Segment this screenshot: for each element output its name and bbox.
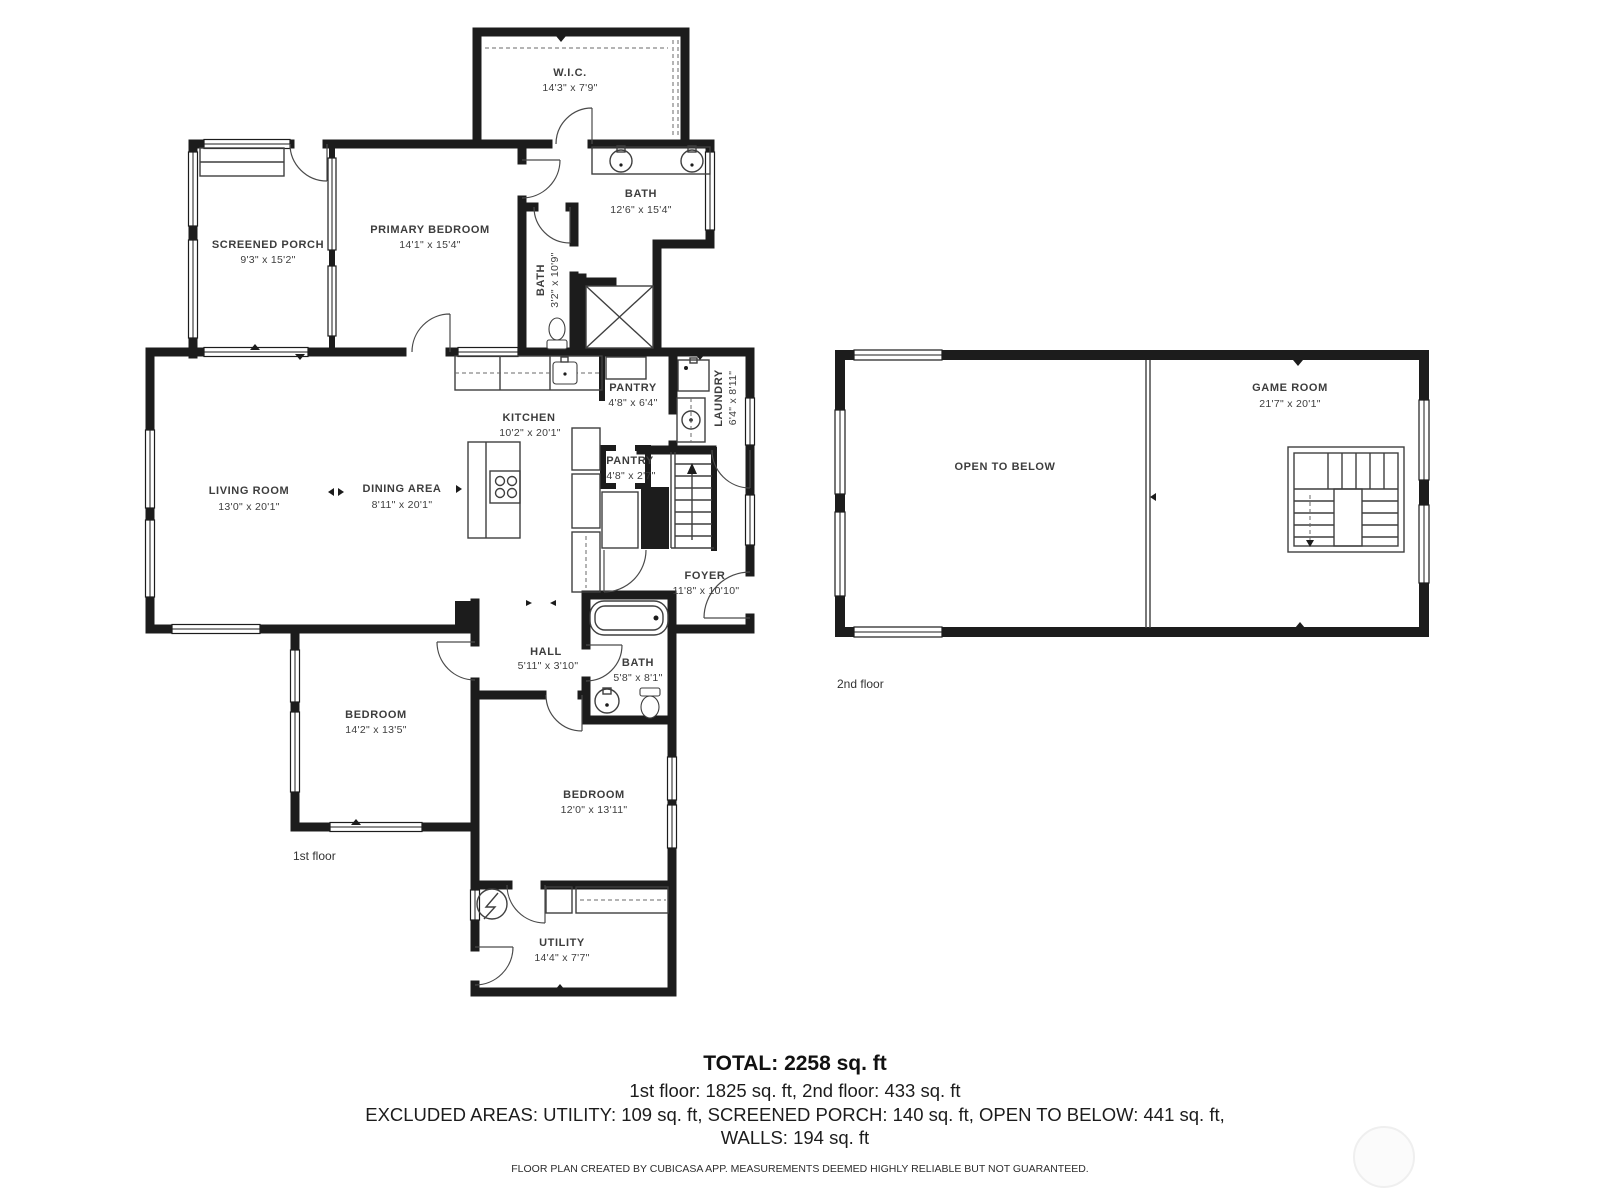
kitchen-counter-sink xyxy=(455,356,602,390)
label-utility: UTILITY xyxy=(539,937,585,949)
floor-plan-page: W.I.C. 14'3" x 7'9" SCREENED PORCH 9'3" … xyxy=(0,0,1600,1200)
summary-disclaimer: FLOOR PLAN CREATED BY CUBICASA APP. MEAS… xyxy=(511,1163,1088,1175)
kitchen-island-stove xyxy=(468,442,520,538)
shower xyxy=(586,286,653,348)
room-labels-second-floor: OPEN TO BELOW GAME ROOM 21'7" x 20'1" 2n… xyxy=(837,382,1328,691)
second-floor-windows xyxy=(835,350,1429,637)
label-living-room: LIVING ROOM xyxy=(209,485,290,497)
dims-bedroom-left: 14'2" x 13'5" xyxy=(345,724,407,736)
summary-total: TOTAL: 2258 sq. ft xyxy=(703,1052,887,1075)
label-open-to-below: OPEN TO BELOW xyxy=(954,461,1055,473)
dims-screened-porch: 9'3" x 15'2" xyxy=(240,254,295,266)
dims-wic: 14'3" x 7'9" xyxy=(542,82,597,94)
laundry-machines xyxy=(677,358,709,442)
watermark-circle xyxy=(1354,1127,1414,1187)
label-pantry-lower: PANTRY xyxy=(606,455,654,467)
dims-pantry-upper: 4'8" x 6'4" xyxy=(608,397,657,409)
dims-hall: 5'11" x 3'10" xyxy=(518,660,579,672)
toilet-small-bath xyxy=(547,318,567,349)
staircase-second-floor xyxy=(1288,447,1404,552)
dims-dining-area: 8'11" x 20'1" xyxy=(372,499,433,511)
label-bath-small: BATH xyxy=(535,264,547,296)
toilet-hall-bath xyxy=(640,688,660,718)
dims-foyer: 11'8" x 10'10" xyxy=(673,585,740,597)
label-bath-primary: BATH xyxy=(625,188,657,200)
label-foyer: FOYER xyxy=(685,570,726,582)
dims-bedroom-right: 12'0" x 13'11" xyxy=(561,804,628,816)
dims-game-room: 21'7" x 20'1" xyxy=(1259,398,1321,410)
dims-kitchen: 10'2" x 20'1" xyxy=(499,427,561,439)
label-bath-hall: BATH xyxy=(622,657,654,669)
label-game-room: GAME ROOM xyxy=(1252,382,1328,394)
dims-pantry-lower: 4'8" x 2'7" xyxy=(606,470,655,482)
label-bedroom-right: BEDROOM xyxy=(563,789,625,801)
label-hall: HALL xyxy=(530,646,562,658)
label-pantry-upper: PANTRY xyxy=(609,382,657,394)
dims-laundry: 6'4" x 8'11" xyxy=(727,371,739,426)
utility-counter xyxy=(546,887,668,913)
vanity-double-sink xyxy=(592,146,710,174)
label-screened-porch: SCREENED PORCH xyxy=(212,239,324,251)
second-floor-caption: 2nd floor xyxy=(837,677,884,691)
dims-utility: 14'4" x 7'7" xyxy=(534,952,589,964)
area-summary: TOTAL: 2258 sq. ft 1st floor: 1825 sq. f… xyxy=(365,1052,1225,1175)
dims-living-room: 13'0" x 20'1" xyxy=(218,501,280,513)
water-heater xyxy=(477,889,507,919)
summary-floors: 1st floor: 1825 sq. ft, 2nd floor: 433 s… xyxy=(629,1080,960,1101)
label-wic: W.I.C. xyxy=(553,67,587,79)
pantry-shelves xyxy=(606,357,646,379)
first-floor-caption: 1st floor xyxy=(293,849,336,863)
label-kitchen: KITCHEN xyxy=(502,412,555,424)
label-laundry: LAUNDRY xyxy=(713,369,725,427)
staircase-first-floor xyxy=(671,452,714,548)
dims-primary-bedroom: 14'1" x 15'4" xyxy=(399,239,461,251)
dims-bath-small: 3'2" x 10'9" xyxy=(549,252,561,307)
dims-bath-primary: 12'6" x 15'4" xyxy=(610,204,672,216)
porch-screen xyxy=(200,148,284,176)
sink-hall-bath xyxy=(595,688,619,713)
floor-plan-canvas: W.I.C. 14'3" x 7'9" SCREENED PORCH 9'3" … xyxy=(0,0,1600,1200)
dims-bath-hall: 5'8" x 8'1" xyxy=(613,672,662,684)
label-bedroom-left: BEDROOM xyxy=(345,709,407,721)
summary-walls: WALLS: 194 sq. ft xyxy=(721,1127,869,1148)
second-floor-walls xyxy=(840,355,1424,632)
summary-excluded: EXCLUDED AREAS: UTILITY: 109 sq. ft, SCR… xyxy=(365,1104,1225,1125)
bathtub-hall-bath xyxy=(590,601,668,635)
label-dining-area: DINING AREA xyxy=(363,483,442,495)
label-primary-bedroom: PRIMARY BEDROOM xyxy=(370,224,490,236)
